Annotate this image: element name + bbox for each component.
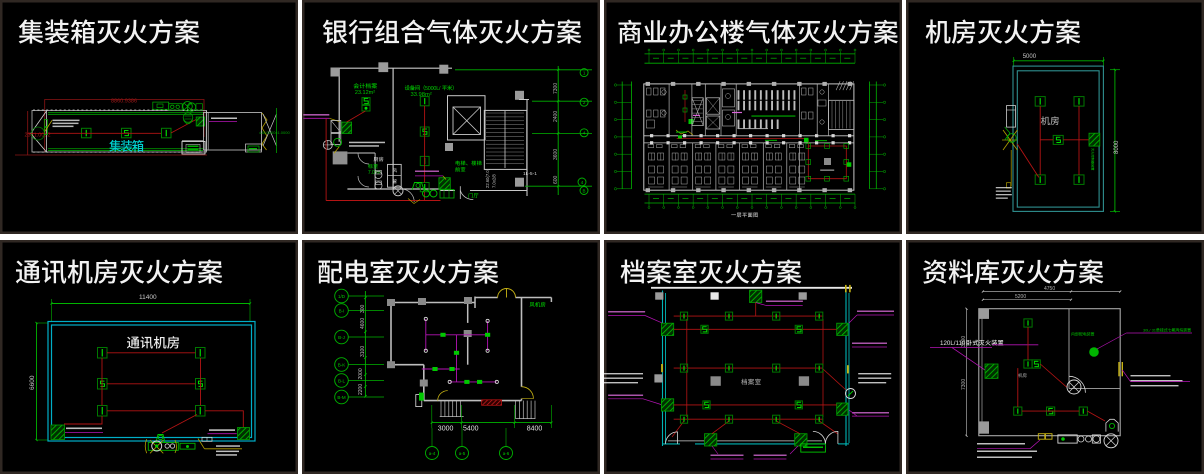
svg-text:22.60(7.0): 22.60(7.0)	[485, 168, 490, 188]
svg-text:120L/110: 120L/110	[940, 340, 966, 347]
svg-text:3600: 3600	[553, 149, 559, 160]
svg-text:5400: 5400	[463, 426, 479, 433]
svg-text:7300: 7300	[553, 83, 559, 94]
svg-text:B: B	[582, 188, 585, 193]
svg-text:4750: 4750	[1044, 286, 1055, 292]
svg-text:11400: 11400	[139, 294, 157, 301]
svg-text:B-K: B-K	[338, 362, 346, 367]
svg-text:2000: 2000	[358, 368, 364, 379]
svg-text:2400: 2400	[553, 111, 559, 122]
svg-text:300: 300	[360, 304, 366, 313]
svg-text:a-4: a-4	[429, 451, 436, 456]
svg-text:B-J: B-J	[338, 335, 345, 340]
svg-text:a-6: a-6	[503, 451, 510, 456]
svg-text:3000: 3000	[438, 426, 454, 433]
svg-text:5000: 5000	[1023, 54, 1037, 60]
svg-text:B-L: B-L	[338, 378, 346, 383]
svg-text:a-5: a-5	[459, 451, 466, 456]
svg-text:2200: 2200	[358, 384, 364, 395]
svg-text:600: 600	[553, 175, 559, 184]
svg-text:B-I: B-I	[339, 308, 345, 313]
svg-text:1/D: 1/D	[338, 294, 346, 299]
svg-text:8000: 8000	[1114, 140, 1120, 154]
svg-text:3100: 3100	[360, 346, 366, 357]
svg-text:1L-5-1: 1L-5-1	[523, 171, 537, 177]
svg-text:7.0x2/8: 7.0x2/8	[492, 174, 497, 188]
svg-text:4J8.0000x1.0000: 4J8.0000x1.0000	[259, 130, 290, 135]
svg-text:23.12m²: 23.12m²	[355, 90, 375, 96]
svg-text:7300: 7300	[961, 379, 967, 390]
svg-text:8400: 8400	[527, 426, 543, 433]
svg-text:8860.9386: 8860.9386	[111, 98, 137, 104]
svg-text:B-M: B-M	[337, 395, 346, 400]
svg-text:5200: 5200	[1015, 294, 1026, 300]
svg-text:6600: 6600	[29, 375, 36, 390]
svg-text:4600: 4600	[360, 318, 366, 329]
